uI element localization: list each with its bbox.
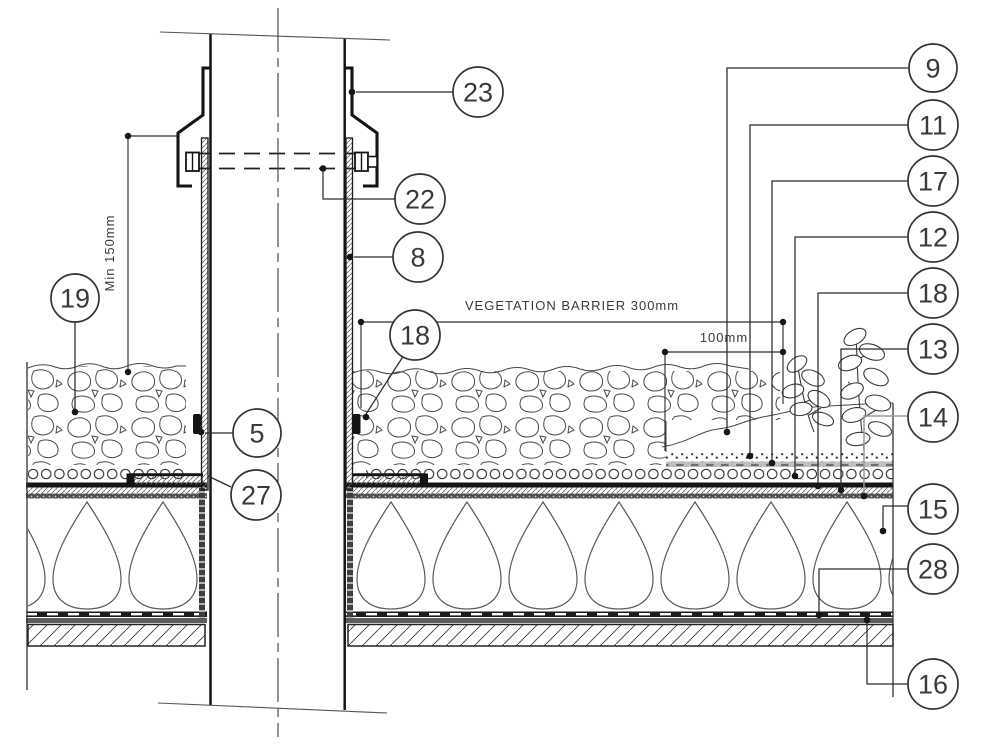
- vegetation-barrier-strip: [665, 420, 781, 453]
- protection-layer-right: [345, 488, 893, 494]
- insulation-right: [353, 499, 893, 611]
- separation-layer-texture-left: [26, 494, 207, 499]
- callout-16-label: 16: [918, 670, 948, 700]
- callout-12-label: 12: [918, 223, 948, 253]
- callout-5-label: 5: [249, 419, 264, 449]
- callout-9-label: 9: [925, 54, 940, 84]
- callout-19-label: 19: [60, 284, 90, 314]
- green-roof-pipe-penetration-detail: Min 150mm VEGETATION BARRIER 300mm 100mm…: [0, 0, 1000, 747]
- pebble-ballast-over-strip: [666, 371, 780, 420]
- callout-8-label: 8: [410, 243, 425, 273]
- dim-vegetation-barrier-label: VEGETATION BARRIER 300mm: [465, 298, 679, 313]
- pebble-ballast-right: [353, 371, 666, 465]
- dim-min-150-label: Min 150mm: [102, 215, 117, 292]
- separation-layer-texture-right: [345, 494, 893, 499]
- insulation-edge-strip-texture-right: [347, 488, 353, 618]
- callout-15-label: 15: [918, 495, 948, 525]
- upstand-foot-right: [353, 476, 425, 486]
- membrane-termination-right: [420, 474, 428, 488]
- deck-membrane-right: [345, 618, 893, 623]
- callout-17-label: 17: [918, 167, 948, 197]
- callout-23-label: 23: [463, 78, 493, 108]
- dim-100-label: 100mm: [700, 330, 748, 345]
- callout-13-label: 13: [918, 335, 948, 365]
- upstand-foot-left: [130, 476, 202, 486]
- insulation-left: [28, 499, 200, 611]
- callout-28-label: 28: [918, 555, 948, 585]
- bolt-nut: [368, 157, 377, 168]
- concrete-deck-left: [28, 625, 205, 647]
- membrane-termination-left: [127, 474, 135, 488]
- callout-11-label: 11: [919, 111, 947, 141]
- callout-27-label: 27: [241, 481, 271, 511]
- pebble-ballast-left: [28, 366, 186, 465]
- callout-22-label: 22: [405, 185, 435, 215]
- fine-substrate-layer: [666, 452, 893, 462]
- drainage-layer-right: [366, 465, 893, 482]
- insulation-edge-strip-texture-left: [199, 488, 205, 618]
- deck-membrane-left: [26, 618, 207, 623]
- drawing-canvas: Min 150mm VEGETATION BARRIER 300mm 100mm…: [0, 0, 1000, 747]
- protection-layer-left: [26, 488, 207, 494]
- termination-bar-right: [353, 414, 361, 434]
- concrete-deck-right: [348, 625, 893, 647]
- callout-14-label: 14: [918, 403, 948, 433]
- callout-18-roof-label: 18: [918, 279, 948, 309]
- roof-buildup-left: [26, 362, 207, 690]
- callout-18-pipe-label: 18: [400, 321, 430, 351]
